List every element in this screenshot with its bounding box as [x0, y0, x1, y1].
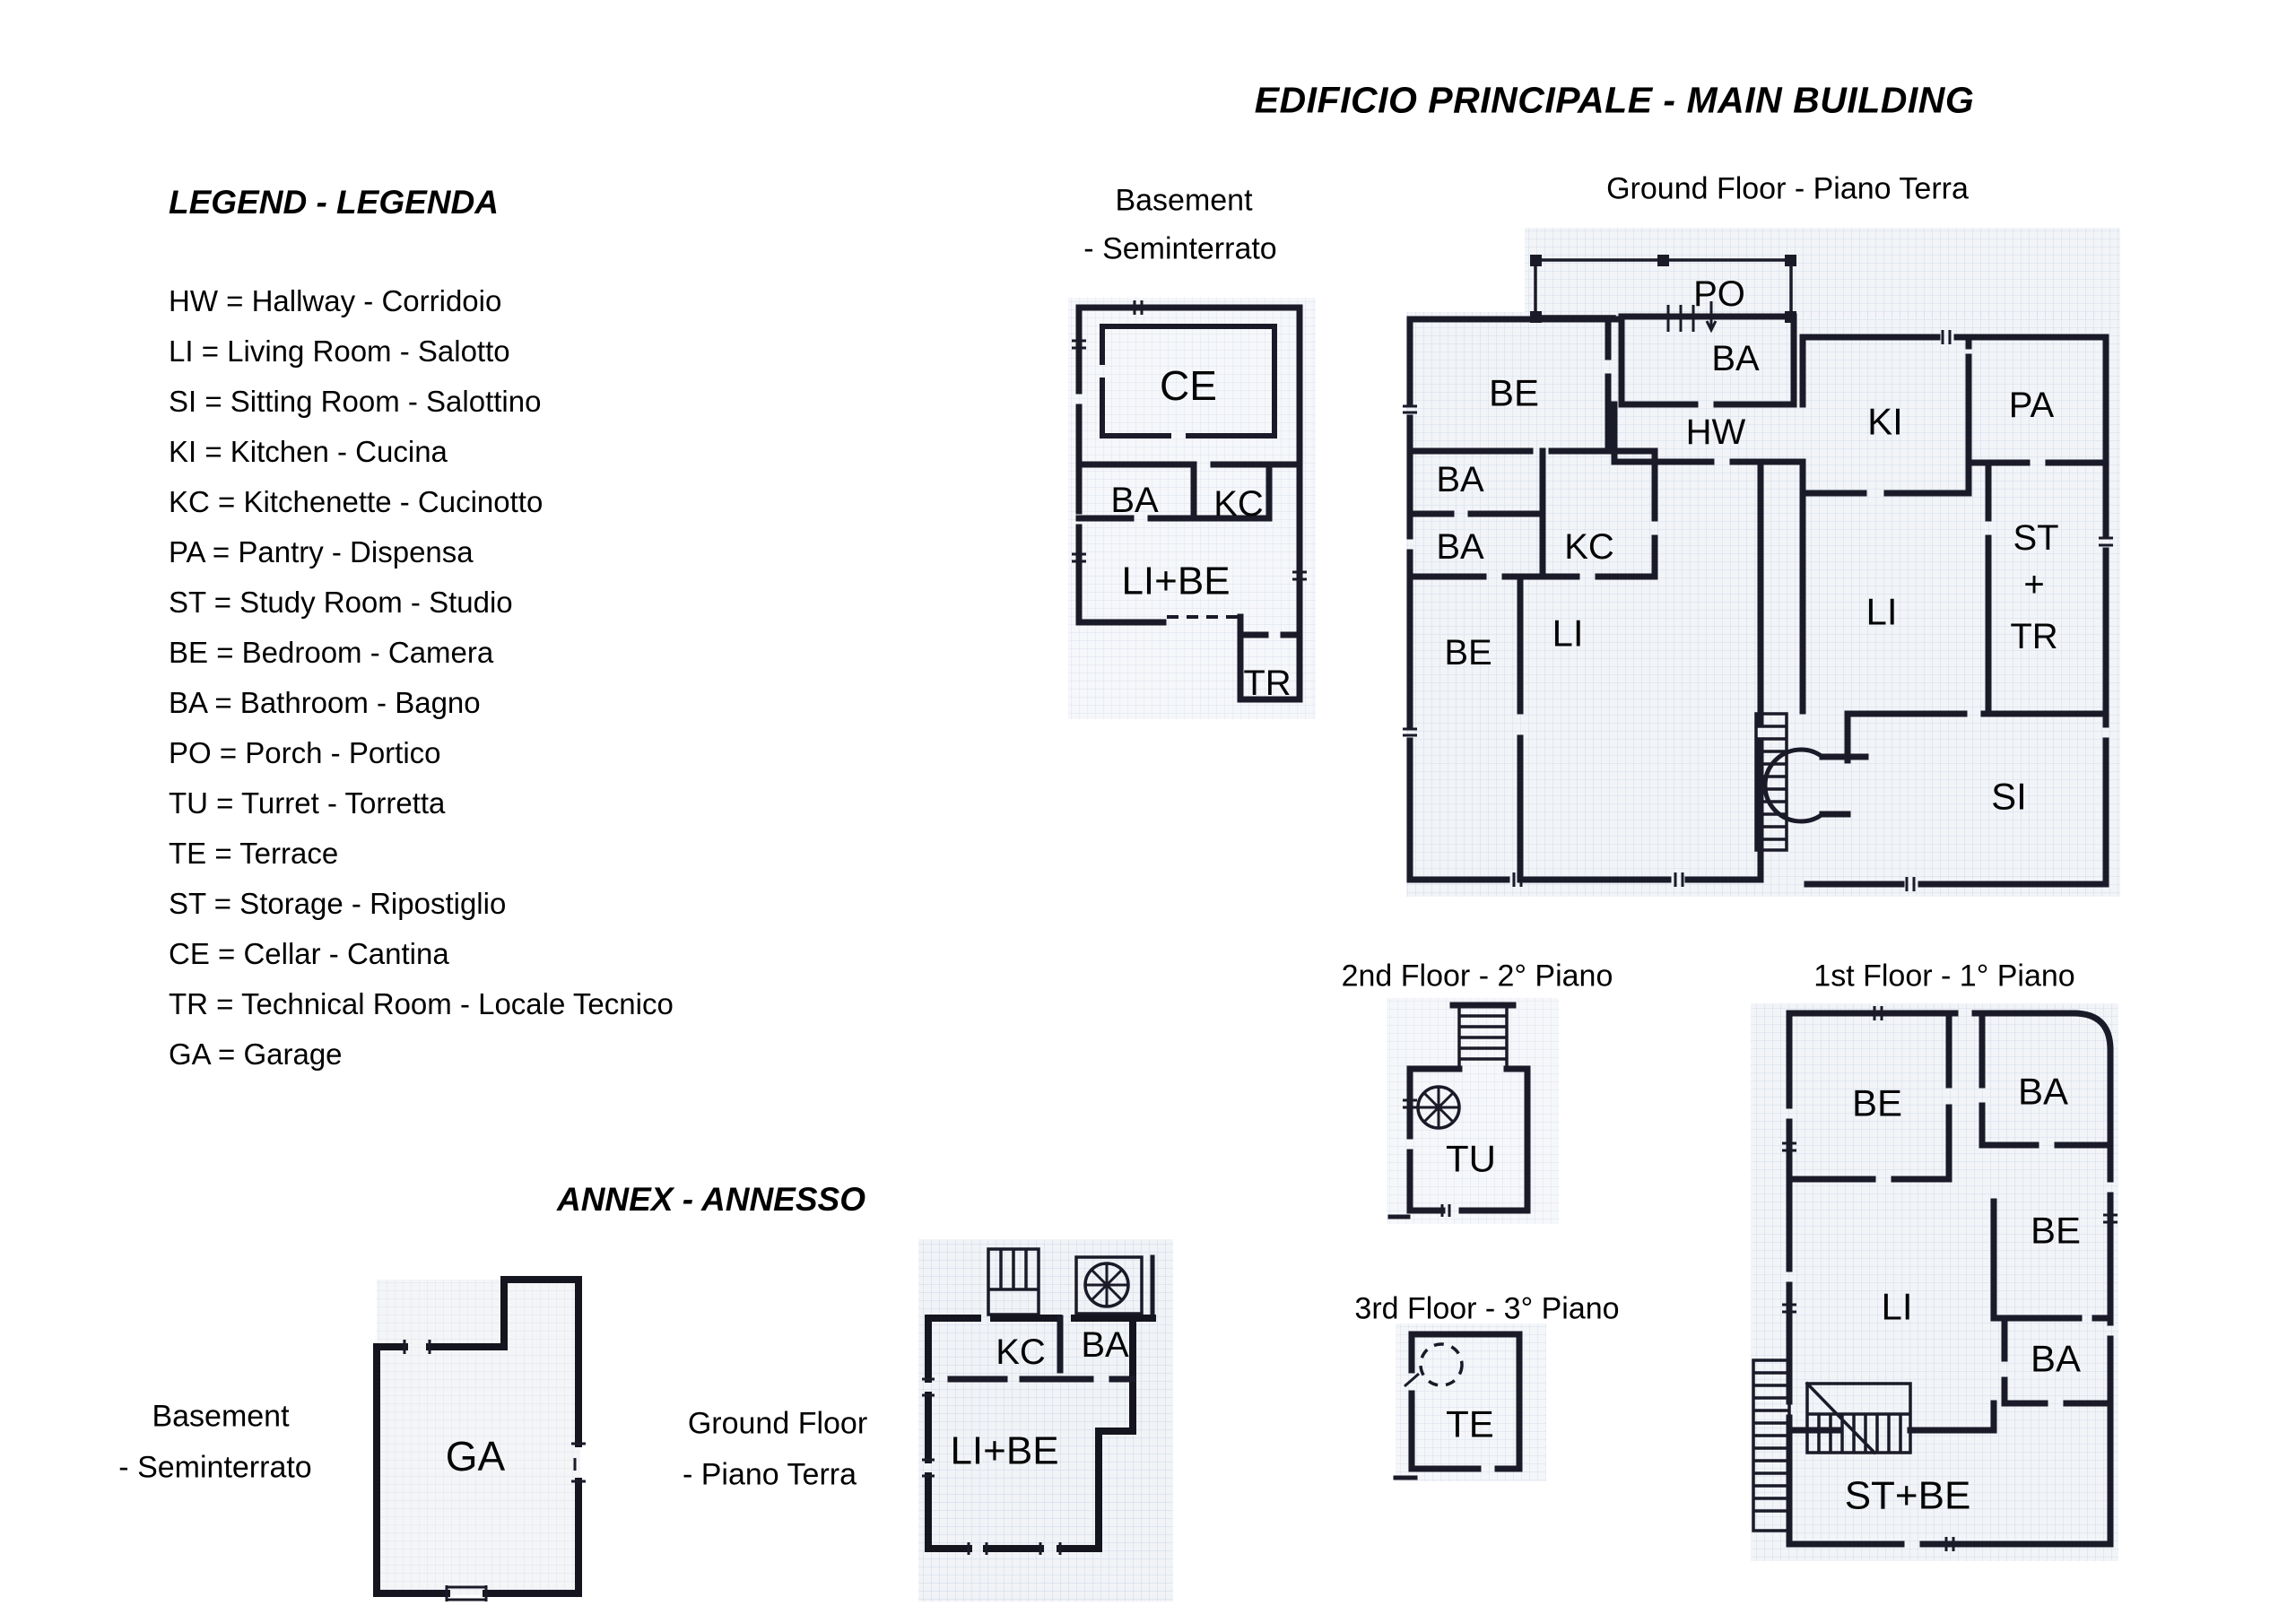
main-basement-label-line1: Basement: [1115, 184, 1252, 219]
legend-item-tu: TU = Turret - Torretta: [169, 778, 674, 829]
room-label-ce: CE: [1160, 362, 1217, 409]
annex-ground-floor-plan: KC BA LI+BE: [915, 1236, 1177, 1608]
room-label-li-right: LI: [1865, 591, 1897, 633]
room-label-kc: KC: [1213, 484, 1264, 524]
annex-ground-label-line1: Ground Floor: [688, 1407, 867, 1442]
room-label-te: TE: [1446, 1403, 1494, 1445]
room-label-tu: TU: [1446, 1138, 1496, 1180]
legend-item-be: BE = Bedroom - Camera: [169, 628, 674, 678]
legend-list: HW = Hallway - Corridoio LI = Living Roo…: [169, 276, 674, 1080]
room-label-li-be: LI+BE: [950, 1429, 1058, 1473]
room-label-po: PO: [1693, 274, 1745, 314]
legend-item-st-study: ST = Study Room - Studio: [169, 577, 674, 628]
legend-item-te: TE = Terrace: [169, 829, 674, 879]
ground-floor-label: Ground Floor - Piano Terra: [1606, 172, 1969, 207]
annex-basement-floor-plan: GA: [354, 1266, 598, 1611]
legend-item-ba: BA = Bathroom - Bagno: [169, 678, 674, 728]
legend-item-pa: PA = Pantry - Dispensa: [169, 527, 674, 577]
legend-item-li: LI = Living Room - Salotto: [169, 326, 674, 377]
legend-item-tr: TR = Technical Room - Locale Tecnico: [169, 979, 674, 1029]
legend-item-kc: KC = Kitchenette - Cucinotto: [169, 477, 674, 527]
room-label-li-left: LI: [1552, 612, 1583, 655]
third-floor-plan: TE: [1392, 1318, 1552, 1490]
room-label-ba-right: BA: [2031, 1338, 2081, 1380]
legend-item-po: PO = Porch - Portico: [169, 728, 674, 778]
main-building-title: EDIFICIO PRINCIPALE - MAIN BUILDING: [1255, 80, 1975, 122]
legend-item-st-storage: ST = Storage - Ripostiglio: [169, 879, 674, 929]
room-label-li: LI: [1881, 1286, 1912, 1328]
legend-item-si: SI = Sitting Room - Salottino: [169, 377, 674, 427]
room-label-be-right: BE: [2031, 1210, 2081, 1252]
annex-basement-label-line2: - Seminterrato: [118, 1451, 311, 1486]
second-floor-plan: TU: [1381, 993, 1565, 1237]
room-label-be-bottom: BE: [1444, 633, 1492, 673]
second-floor-label: 2nd Floor - 2° Piano: [1342, 959, 1613, 994]
first-floor-label: 1st Floor - 1° Piano: [1813, 959, 2074, 994]
room-label-kc: KC: [996, 1332, 1046, 1372]
room-label-pa: PA: [2009, 386, 2055, 425]
legend-item-hw: HW = Hallway - Corridoio: [169, 276, 674, 326]
room-label-kc: KC: [1564, 527, 1614, 567]
room-label-ba-top: BA: [1711, 339, 1760, 378]
room-label-si: SI: [1991, 776, 2027, 818]
room-label-be-top: BE: [1852, 1082, 1902, 1124]
room-label-ba-top: BA: [2018, 1071, 2068, 1113]
annex-title: ANNEX - ANNESSO: [557, 1181, 865, 1219]
room-label-tr: TR: [1243, 664, 1291, 703]
legend-item-ga: GA = Garage: [169, 1029, 674, 1080]
ground-floor-plan: PO BA HW BE BA BA KC LI BE KI PA ST + TR…: [1399, 222, 2126, 906]
room-label-ba-left-lower: BA: [1436, 527, 1484, 567]
main-basement-label-line2: - Seminterrato: [1083, 232, 1276, 267]
room-label-ba: BA: [1110, 481, 1159, 520]
main-basement-floor-plan: CE BA KC LI+BE TR: [1063, 285, 1323, 726]
room-label-st: ST: [2013, 518, 2058, 558]
room-label-plus: +: [2023, 565, 2044, 604]
spiral-stair-icon: [1418, 1087, 1459, 1128]
room-label-ki: KI: [1867, 401, 1903, 443]
floor-plan-sheet: EDIFICIO PRINCIPALE - MAIN BUILDING LEGE…: [0, 0, 2296, 1623]
room-label-li-be: LI+BE: [1121, 560, 1230, 603]
room-label-st-be: ST+BE: [1845, 1474, 1971, 1518]
first-floor-plan: BE BA BE LI BA ST+BE: [1740, 1000, 2130, 1567]
annex-basement-label-line1: Basement: [152, 1400, 289, 1435]
graph-paper-grid-top: [1525, 228, 2120, 317]
legend-item-ki: KI = Kitchen - Cucina: [169, 427, 674, 477]
room-label-tr: TR: [2010, 617, 2057, 656]
room-label-ba: BA: [1081, 1325, 1129, 1365]
room-label-ba-left-upper: BA: [1436, 460, 1484, 499]
legend-item-ce: CE = Cellar - Cantina: [169, 929, 674, 979]
legend-title: LEGEND - LEGENDA: [169, 184, 499, 221]
room-label-hw: HW: [1686, 412, 1746, 452]
room-label-ga: GA: [446, 1433, 506, 1480]
annex-ground-label-line2: - Piano Terra: [683, 1458, 857, 1493]
room-label-be-top: BE: [1489, 372, 1539, 414]
